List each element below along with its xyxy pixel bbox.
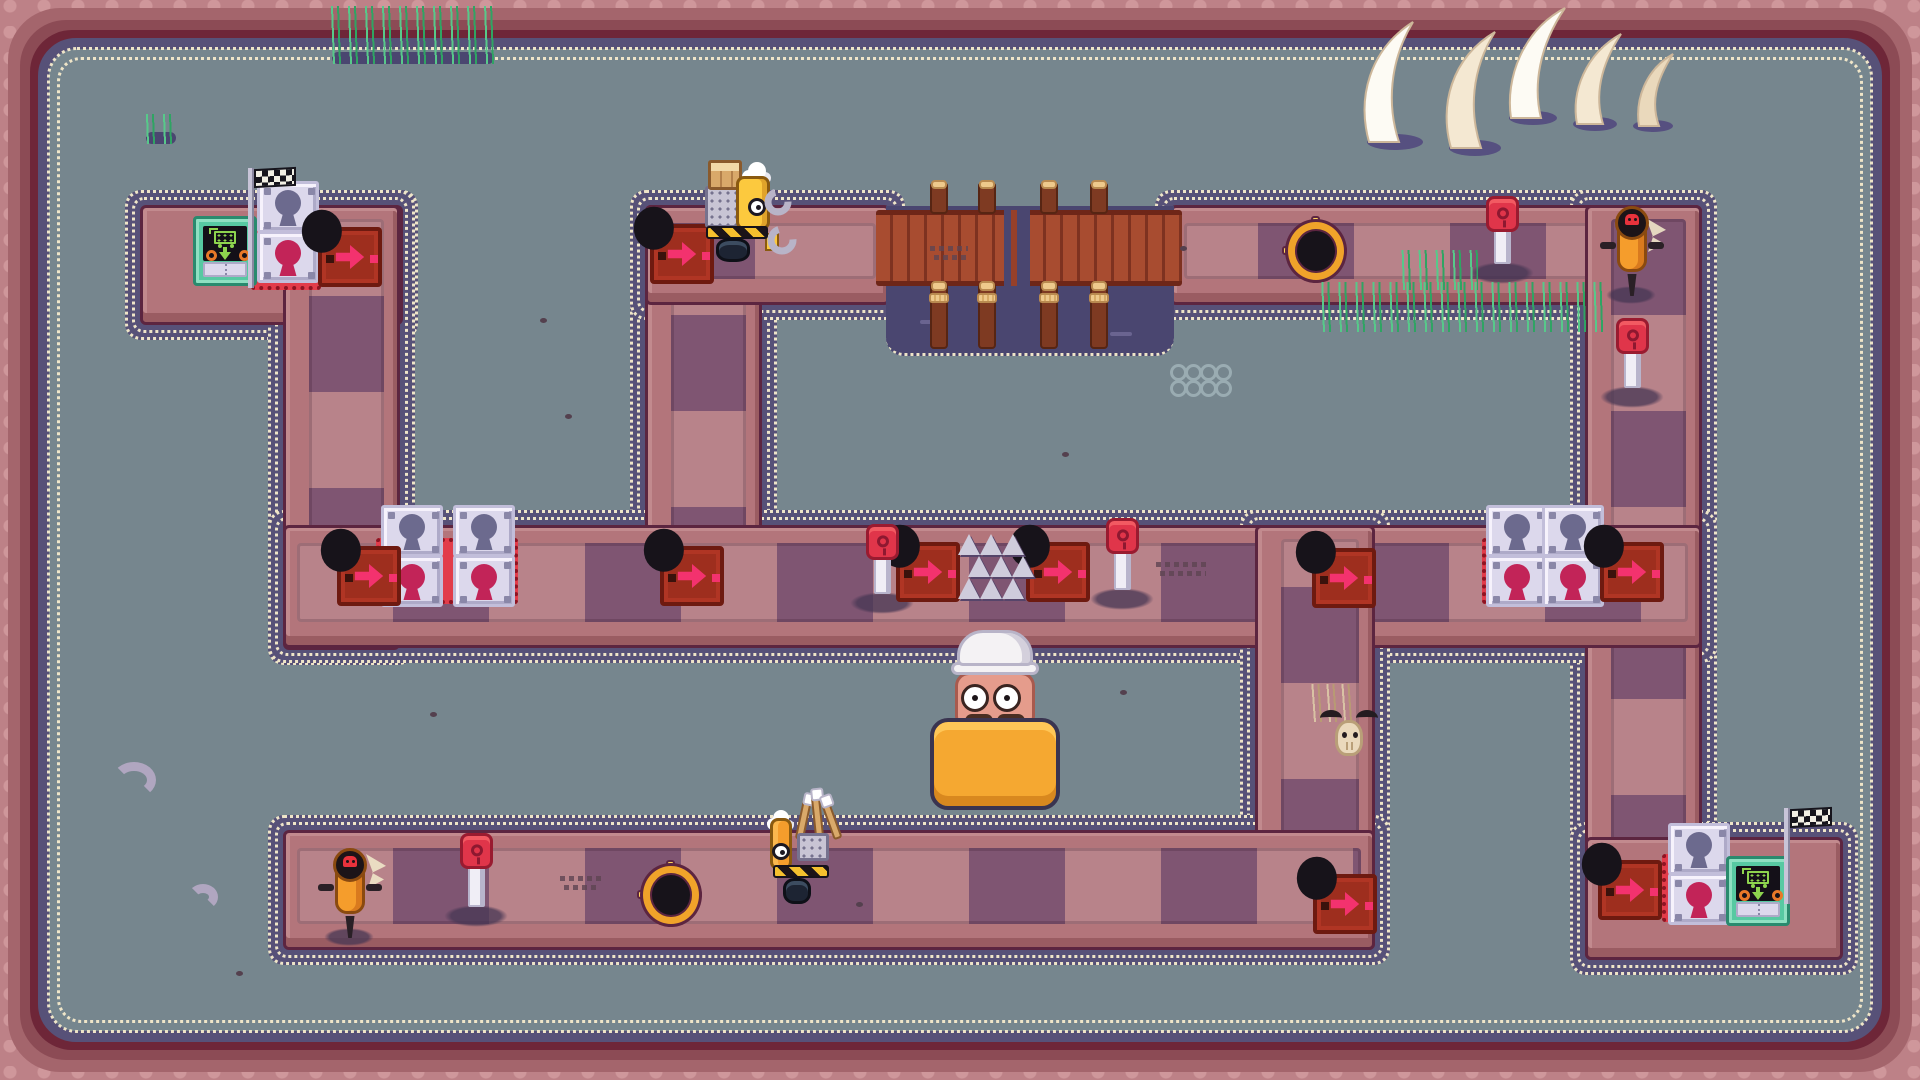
bone-pile-icon <box>188 884 218 910</box>
lock-rivet <box>432 596 439 603</box>
lock-rivet <box>460 512 467 519</box>
tile-stud-pink <box>1364 576 1372 584</box>
vehicle-eye-icon <box>772 843 790 860</box>
player-eye <box>961 684 989 712</box>
arrow-right-icon <box>1328 889 1362 919</box>
lock-tile <box>453 555 515 607</box>
arrow-right-icon <box>1327 563 1361 593</box>
player-character[interactable] <box>925 628 1065 818</box>
spike-trap <box>1002 578 1024 599</box>
arrow-tile[interactable] <box>896 542 960 602</box>
post-rope <box>1089 293 1109 303</box>
spike-trap <box>980 534 1002 555</box>
lock-rivet <box>460 596 467 603</box>
goal-screen <box>1736 866 1780 901</box>
door-hinge <box>208 267 212 271</box>
dirt-speck <box>1180 246 1187 251</box>
button-glyph-icon <box>1497 207 1509 219</box>
tile-stud-pink <box>370 255 378 263</box>
arrow-tile[interactable] <box>337 546 401 606</box>
red-button[interactable] <box>1616 318 1649 354</box>
lock-rivet <box>460 562 467 569</box>
gold-arrow-tile[interactable] <box>1288 222 1344 280</box>
jackhammer-handle <box>318 884 334 891</box>
spike-trap <box>1012 556 1034 577</box>
lock-rivet <box>432 562 439 569</box>
skull-horn <box>1356 710 1378 726</box>
tile-stud-pink <box>389 574 397 582</box>
spike-trap <box>968 556 990 577</box>
lock-rivet <box>1593 512 1600 519</box>
post-cap <box>1091 180 1107 189</box>
knob-icon <box>1772 890 1783 901</box>
lock-rivet <box>1493 596 1500 603</box>
player-eye <box>993 684 1021 712</box>
lock-tile <box>453 505 515 557</box>
arrow-tile[interactable] <box>1598 860 1662 920</box>
keyhole-icon <box>397 564 427 600</box>
lock-rivet <box>1675 880 1682 887</box>
spike-trap <box>1002 534 1024 555</box>
dirt-speck <box>1120 690 1127 695</box>
lock-rivet <box>432 512 439 519</box>
lock-tile <box>1486 505 1548 557</box>
goal-screen <box>203 226 247 261</box>
hazard-stripe <box>773 865 829 878</box>
lock-rivet <box>1549 512 1556 519</box>
tile-stud-pink <box>948 570 956 578</box>
lock-rivet <box>1719 830 1726 837</box>
lock-rivet <box>504 596 511 603</box>
tire-track <box>1160 571 1206 576</box>
jackhammer-handle <box>1600 242 1616 249</box>
gold-ring <box>643 866 699 924</box>
keyhole-icon <box>1502 514 1532 550</box>
vehicle-wheel <box>716 238 750 262</box>
lock-rivet <box>308 272 315 279</box>
keyhole-icon <box>397 514 427 550</box>
cart-icon <box>214 231 236 244</box>
arrow-right-icon <box>911 557 945 587</box>
arrow-tile[interactable] <box>1026 542 1090 602</box>
claw-arm-icon <box>762 188 802 258</box>
water-wave <box>1110 332 1132 336</box>
jackhammer[interactable] <box>1612 206 1652 276</box>
checkered-flag-icon <box>254 167 296 188</box>
lock-rivet <box>264 222 271 229</box>
keyhole-icon <box>1684 832 1714 868</box>
bridge-post <box>1040 182 1058 214</box>
rings-doodle <box>1215 380 1232 397</box>
keyhole-icon <box>469 514 499 550</box>
lock-rivet <box>1493 562 1500 569</box>
arrow-tile[interactable] <box>318 227 382 287</box>
lock-rivet <box>1719 864 1726 871</box>
grass-tuft <box>142 114 180 144</box>
vehicle-loader-with-crate[interactable] <box>700 128 810 273</box>
bridge-post <box>930 182 948 214</box>
cart-icon <box>1747 871 1769 884</box>
tire-track <box>564 885 600 890</box>
tile-stud-pink <box>1365 902 1373 910</box>
post-cap <box>979 281 995 291</box>
red-button[interactable] <box>460 833 493 869</box>
arrow-right-icon <box>1613 875 1647 905</box>
lock-rivet <box>264 188 271 195</box>
tire-track <box>934 255 966 260</box>
keyhole-icon <box>1502 564 1532 600</box>
tile-stud-pink <box>1650 888 1658 896</box>
lock-rivet <box>1675 830 1682 837</box>
post-cap <box>931 281 947 291</box>
button-glyph-icon <box>877 535 889 547</box>
door-hinge <box>1741 912 1745 916</box>
spike-trap <box>980 578 1002 599</box>
arrow-right-icon <box>665 239 699 269</box>
red-button[interactable] <box>1106 518 1139 554</box>
hard-hat-icon <box>957 630 1033 666</box>
dirt-speck <box>1062 452 1069 457</box>
skull-head <box>1335 720 1363 756</box>
knob-icon <box>1739 890 1750 901</box>
post-cap <box>1041 281 1057 291</box>
tire-track <box>930 246 968 251</box>
keyhole-icon <box>469 564 499 600</box>
lock-rivet <box>1675 864 1682 871</box>
door-hinge <box>1782 912 1786 916</box>
button-glyph-icon <box>1627 329 1639 341</box>
lock-rivet <box>308 188 315 195</box>
skull-icon <box>343 856 357 867</box>
arrow-right-icon <box>675 561 709 591</box>
lock-tile <box>1668 873 1730 925</box>
skull-icon <box>1625 214 1639 225</box>
bone-pile-icon <box>112 762 156 798</box>
dirt-speck <box>565 414 572 419</box>
door-hinge <box>1782 907 1786 911</box>
sitting-mat <box>930 718 1060 810</box>
tile-stud-pink <box>1652 570 1660 578</box>
bridge-gap <box>1004 210 1030 286</box>
button-shadow <box>1600 386 1664 408</box>
lock-rivet <box>264 238 271 245</box>
vehicle-wheel <box>783 878 811 904</box>
lock-rivet <box>1675 914 1682 921</box>
arrow-right-icon <box>1041 557 1075 587</box>
keyhole-icon <box>1558 564 1588 600</box>
bridge-post <box>930 283 948 349</box>
button-glyph-icon <box>1117 529 1129 541</box>
lock-rivet <box>432 546 439 553</box>
post-cap <box>931 180 947 189</box>
lock-rivet <box>1549 596 1556 603</box>
jackhammer-handle <box>1648 242 1664 249</box>
post-rope <box>1039 293 1059 303</box>
arrow-right-icon <box>333 242 367 272</box>
arrow-right-icon <box>352 561 386 591</box>
lock-tile <box>1668 823 1730 875</box>
post-cap <box>1091 281 1107 291</box>
lock-tile <box>1486 555 1548 607</box>
lock-rivet <box>1593 596 1600 603</box>
goal-terminal[interactable] <box>1726 856 1790 926</box>
lock-rivet <box>388 512 395 519</box>
door-hinge <box>1741 907 1745 911</box>
door-hinge <box>208 272 212 276</box>
red-button[interactable] <box>1486 196 1519 232</box>
rings-doodle <box>1215 364 1232 381</box>
dirt-speck <box>236 971 243 976</box>
lock-rivet <box>504 512 511 519</box>
button-shadow <box>1090 588 1154 610</box>
arrow-tile[interactable] <box>660 546 724 606</box>
lock-rivet <box>1549 562 1556 569</box>
post-cap <box>1041 180 1057 189</box>
keyhole-icon <box>273 240 303 276</box>
grass-tuft <box>328 6 498 64</box>
jackhammer-handle <box>366 884 382 891</box>
arrow-tile[interactable] <box>1312 548 1376 608</box>
post-rope <box>929 293 949 303</box>
lock-rivet <box>1719 880 1726 887</box>
lock-rivet <box>264 272 271 279</box>
lock-rivet <box>1549 546 1556 553</box>
scene-layer <box>0 0 1920 1080</box>
bridge-post <box>978 182 996 214</box>
arrow-right-icon <box>1615 557 1649 587</box>
game-board <box>0 0 1920 1080</box>
vehicle-grate <box>797 833 829 861</box>
bridge-post <box>1040 283 1058 349</box>
red-button[interactable] <box>866 524 899 560</box>
knob-icon <box>206 250 217 261</box>
bridge-post <box>978 283 996 349</box>
lock-rivet <box>1719 914 1726 921</box>
checkered-flag-icon <box>1790 807 1832 828</box>
tire-track <box>1156 562 1208 567</box>
goal-doors <box>203 262 247 277</box>
spike-trap <box>990 556 1012 577</box>
button-glyph-icon <box>471 844 483 856</box>
gold-ring <box>1288 222 1344 280</box>
post-cap <box>979 180 995 189</box>
post-rope <box>977 293 997 303</box>
lock-rivet <box>460 546 467 553</box>
arrow-tile[interactable] <box>1600 542 1664 602</box>
grass-tuft <box>1398 250 1478 290</box>
arrow-tile[interactable] <box>1313 874 1377 934</box>
goal-doors <box>1736 902 1780 917</box>
keyhole-icon <box>1684 882 1714 918</box>
tire-track <box>560 876 602 881</box>
lock-rivet <box>1493 512 1500 519</box>
dirt-speck <box>430 712 437 717</box>
gold-arrow-tile[interactable] <box>643 866 699 924</box>
lock-rivet <box>1493 546 1500 553</box>
button-shadow <box>1470 262 1534 284</box>
lock-rivet <box>504 562 511 569</box>
lock-rivet <box>504 546 511 553</box>
dirt-speck <box>540 318 547 323</box>
bridge-post <box>1090 182 1108 214</box>
jackhammer[interactable] <box>330 848 370 918</box>
spike-trap <box>958 578 980 599</box>
cow-skull-icon <box>1324 710 1374 762</box>
tile-stud-pink <box>1078 570 1086 578</box>
keyhole-icon <box>273 190 303 226</box>
spike-trap <box>958 534 980 555</box>
vehicle-truck-with-pipes[interactable] <box>765 790 875 935</box>
button-shadow <box>444 905 508 927</box>
bridge-post <box>1090 283 1108 349</box>
tile-stud-pink <box>712 574 720 582</box>
tusk-bones-icon <box>1355 6 1690 156</box>
